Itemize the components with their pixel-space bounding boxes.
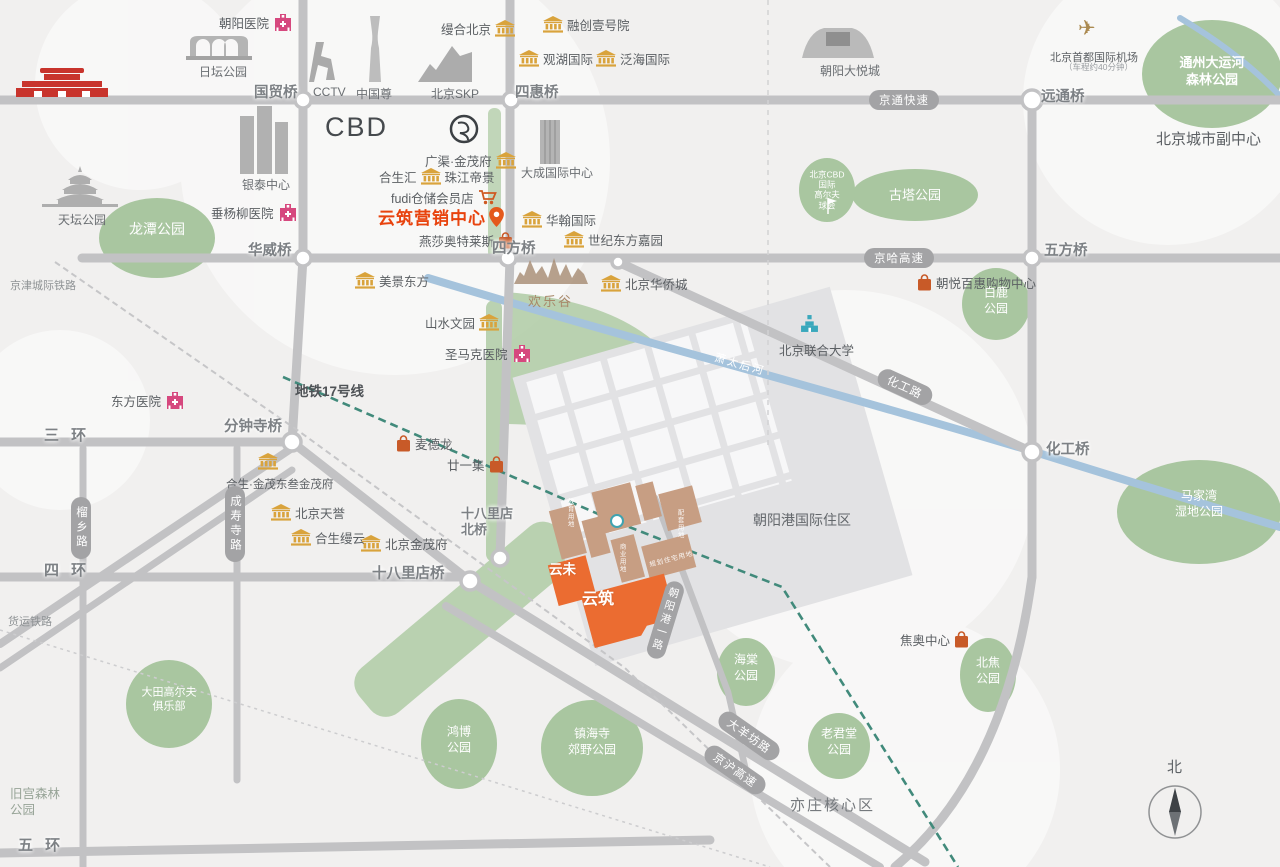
bailu-park-label: 白鹿 公园: [984, 285, 1008, 316]
tongzhou-park-label: 通州大运河 森林公园: [1179, 55, 1244, 89]
project-yunzhu-label: 云筑: [582, 585, 614, 609]
poi-maidelong: 麦德龙: [396, 434, 453, 453]
poi-shengmake: 圣马克医院: [445, 344, 532, 363]
cbd-label: CBD: [325, 112, 388, 143]
metro-station-icon: [611, 515, 623, 527]
zhenhaisi-park-label: 镇海寺 郊野公园: [568, 726, 616, 757]
happy-valley-castle-icon: [514, 256, 588, 286]
bridge-sifang: 四方桥: [492, 237, 536, 258]
bridge-wufang: 五方桥: [1044, 239, 1088, 260]
yizhuang-core-label: 亦庄核心区: [790, 794, 875, 815]
tiananmen-icon: [14, 66, 110, 100]
poi-shiji: 世纪东方嘉园: [564, 230, 663, 249]
road-label-chengshousi: 成寿寺路: [225, 486, 245, 562]
beijiao-park-label: 北焦 公园: [976, 655, 1000, 686]
bridge-guomao: 国贸桥: [254, 81, 298, 102]
ring5-label: 五 环: [18, 834, 64, 855]
metro17-label: 地铁17号线: [295, 380, 364, 400]
bridge-huagong: 化工桥: [1046, 438, 1090, 459]
chinazun-tower-icon: [368, 16, 382, 82]
chinazun-label: 中国尊: [356, 85, 392, 102]
ritan-gate-icon: [186, 32, 252, 62]
poi-meijing: 美景东方: [355, 271, 429, 290]
block-edu-label: 教育用地: [566, 498, 573, 528]
poi-chaoyue: 朝悦百惠购物中心: [917, 273, 1036, 292]
airport-icon: ✈: [1078, 16, 1096, 41]
dacheng-label: 大成国际中心: [521, 164, 593, 181]
poi-manyun: 合生缦云: [291, 528, 365, 547]
joycity-mall-icon: [798, 18, 878, 60]
tiantan-park-label: 天坛公园: [58, 211, 106, 228]
haitang-park-label: 海棠 公园: [734, 652, 758, 683]
ring3-label: 三 环: [44, 424, 90, 445]
poi-rongchuang: 融创壹号院: [543, 15, 630, 34]
freight-rail-label: 货运铁路: [8, 613, 52, 629]
bridge-shibalidian: 十八里店桥: [372, 562, 445, 583]
road-label-jingtong: 京通快速: [869, 90, 939, 110]
golf-club-label: 北京CBD 国际 高尔夫 球会: [810, 170, 845, 211]
subcenter-label: 北京城市副中心: [1156, 128, 1261, 149]
datian-golf-label: 大田高尔夫 俱乐部: [142, 686, 197, 715]
location-map: 朝阳医院 日坛公园 CCTV 中国尊 北京SKP 缦合北京 融创壹号院 观湖国际…: [0, 0, 1280, 867]
joycity-label: 朝阳大悦城: [820, 62, 880, 79]
poi-jiaoao: 焦奥中心: [900, 630, 969, 649]
block-support-label: 配套用地: [676, 509, 683, 539]
marketing-center-label: 云筑营销中心: [378, 204, 504, 229]
laojuntang-park-label: 老君堂 公园: [821, 726, 857, 757]
poi-fanhai: 泛海国际: [596, 49, 670, 68]
poi-dongfang-hospital: 东方医院: [111, 391, 185, 410]
jiugong-park-label: 旧宫森林 公园: [10, 786, 60, 819]
skp-label: 北京SKP: [431, 85, 479, 102]
guta-park-label: 古塔公园: [889, 188, 941, 205]
road-label-jingha: 京哈高速: [864, 248, 934, 268]
dacheng-tower-icon: [536, 118, 564, 166]
poi-huaqiaocheng: 北京华侨城: [601, 274, 688, 293]
bridge-huawei: 华威桥: [248, 239, 292, 260]
poi-chuiyangliu: 垂杨柳医院: [211, 203, 298, 222]
hongbo-park-label: 鸿博 公园: [447, 724, 471, 755]
ring4-label: 四 环: [44, 559, 90, 580]
jingjin-rail-label: 京津城际铁路: [10, 277, 76, 293]
map-base-graphics: [0, 0, 1280, 867]
bridge-sihui: 四惠桥: [515, 81, 559, 102]
yintai-towers-icon: [238, 104, 290, 176]
happy-valley-label: 欢乐谷: [528, 291, 573, 310]
cbd-emblem-icon: [448, 114, 480, 144]
bridge-shibalidian-north: 十八里店 北桥: [461, 506, 513, 539]
skp-building-icon: [418, 40, 472, 82]
cctv-tower-icon: [306, 36, 336, 84]
poi-tianyu: 北京天誉: [271, 503, 345, 522]
longtan-park-label: 龙潭公园: [129, 220, 185, 238]
district-label: 朝阳港国际住区: [753, 510, 851, 530]
airport-note: （车程约40分钟）: [1064, 61, 1133, 73]
poi-shanshui: 山水文园: [425, 313, 499, 332]
university-icon: [800, 315, 819, 337]
bridge-yuantong: 远通桥: [1041, 85, 1085, 106]
poi-manhe: 缦合北京: [441, 19, 515, 38]
poi-heshenghui-zhujiang: 合生汇珠江帝景: [379, 167, 495, 186]
majiawan-park-label: 马家湾 湿地公园: [1175, 488, 1223, 519]
road-label-liuxiang: 榴乡路: [71, 497, 91, 559]
bank-icon: [258, 453, 278, 475]
poi-guanhu: 观湖国际: [519, 49, 593, 68]
poi-jinmaofu: 北京金茂府: [361, 534, 448, 553]
lianhe-univ-label: 北京联合大学: [779, 340, 854, 359]
ritan-park-label: 日坛公园: [199, 63, 247, 80]
yintai-label: 银泰中心: [242, 176, 290, 193]
bridge-fenzhongsi: 分钟寺桥: [224, 415, 282, 436]
project-yunwei-label: 云未: [549, 558, 576, 578]
compass-north-label: 北: [1167, 756, 1182, 777]
compass-icon: [1149, 786, 1201, 838]
poi-nianyiji: 廿一集: [447, 455, 504, 474]
block-biz-label: 商业用地: [618, 543, 625, 573]
cctv-label: CCTV: [313, 85, 346, 99]
poi-huahan: 华翰国际: [522, 210, 596, 229]
poi-chaoyang-hospital: 朝阳医院: [219, 13, 293, 32]
tiantan-temple-icon: [42, 166, 118, 208]
